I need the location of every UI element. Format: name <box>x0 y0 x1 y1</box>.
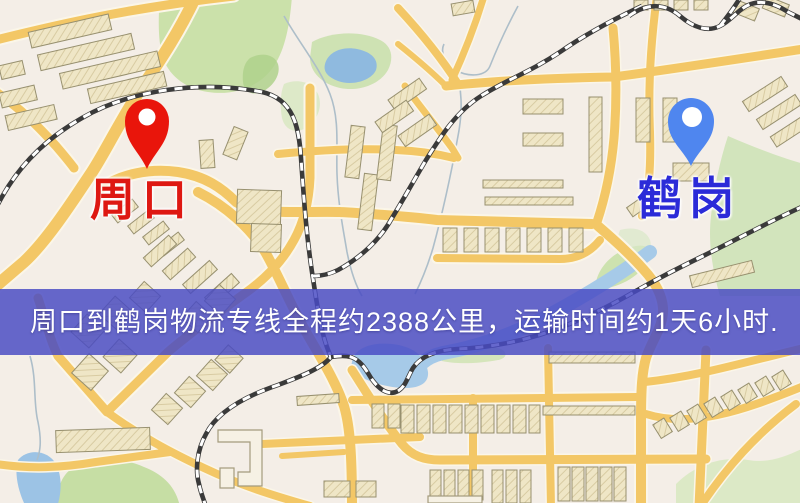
destination-city-label: 鹤岗 <box>637 176 741 221</box>
route-info-text: 周口到鹤岗物流专线全程约2388公里，运输时间约1天6小时. <box>0 289 800 355</box>
map-view[interactable]: 周口 鹤岗 周口到鹤岗物流专线全程约2388公里，运输时间约1天6小时. <box>0 0 800 503</box>
route-info-banner: 周口到鹤岗物流专线全程约2388公里，运输时间约1天6小时. <box>0 289 800 355</box>
map-canvas[interactable] <box>0 0 800 503</box>
origin-city-label: 周口 <box>90 177 194 222</box>
